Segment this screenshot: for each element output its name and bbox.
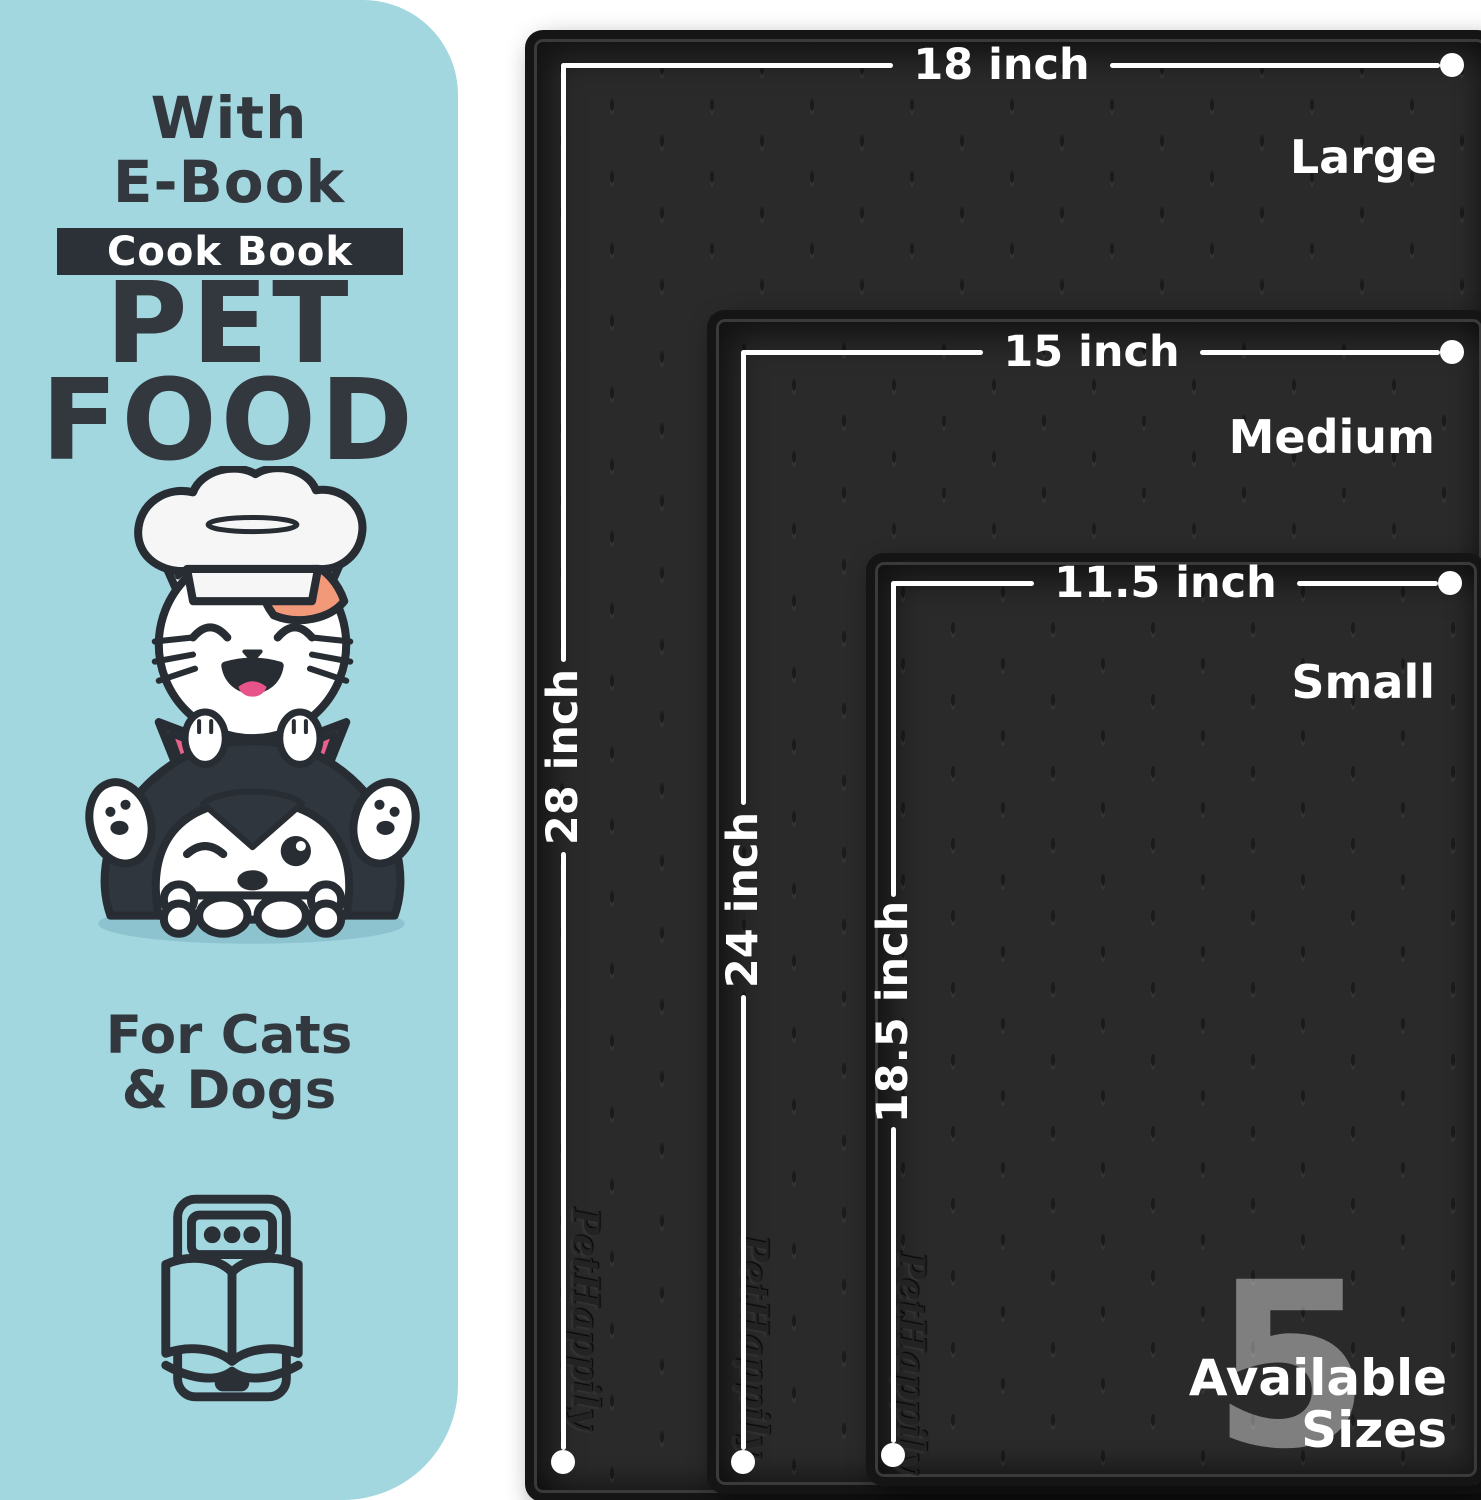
length-label-large: 28 inch — [538, 668, 588, 844]
width-label-small: 11.5 inch — [1034, 558, 1297, 608]
measure-line — [741, 350, 746, 805]
audience-line1: For Cats — [0, 1008, 458, 1063]
size-name-medium: Medium — [1229, 410, 1435, 464]
product-image-canvas: With E-Book Cook Book PET FOOD — [0, 0, 1481, 1500]
length-label-wrap: 24 inch — [719, 805, 767, 995]
info-panel: With E-Book Cook Book PET FOOD — [0, 0, 458, 1500]
measure-endpoint-dot — [731, 1450, 755, 1474]
pet-food-title-line2: FOOD — [0, 373, 458, 470]
width-label-large: 18 inch — [893, 40, 1109, 90]
width-measure-medium: 15 inch — [743, 328, 1464, 376]
width-label-medium: 15 inch — [983, 327, 1199, 377]
length-measure-large: 28 inch — [539, 63, 587, 1474]
audience-text: For Cats & Dogs — [0, 1008, 458, 1118]
available-sizes-line1: Available — [1189, 1352, 1447, 1404]
ebook-heading: With E-Book — [0, 86, 458, 214]
measure-line — [563, 63, 893, 68]
ebook-heading-line1: With — [0, 86, 458, 150]
available-sizes-badge: Available Sizes — [1189, 1352, 1447, 1456]
ebook-icon — [148, 1190, 316, 1410]
measure-endpoint-dot — [1440, 53, 1464, 77]
length-label-wrap: 28 inch — [539, 662, 587, 852]
pet-food-title: PET FOOD — [0, 276, 458, 470]
measure-line — [891, 1127, 896, 1443]
length-measure-small: 18.5 inch — [869, 581, 917, 1467]
measure-line — [561, 852, 566, 1451]
measure-line — [1200, 350, 1440, 355]
measure-line — [743, 350, 983, 355]
width-measure-large: 18 inch — [563, 41, 1464, 89]
size-name-small: Small — [1291, 655, 1435, 709]
ebook-heading-line2: E-Book — [0, 150, 458, 214]
length-label-wrap: 18.5 inch — [869, 897, 917, 1127]
measure-endpoint-dot — [1438, 571, 1462, 595]
cat-dog-chef-illustration — [58, 466, 446, 954]
length-measure-medium: 24 inch — [719, 350, 767, 1474]
length-label-small: 18.5 inch — [868, 901, 918, 1124]
audience-line2: & Dogs — [0, 1063, 458, 1118]
measure-endpoint-dot — [1440, 340, 1464, 364]
available-sizes-line2: Sizes — [1189, 1404, 1447, 1456]
size-name-large: Large — [1290, 130, 1437, 184]
measure-line — [891, 581, 896, 897]
measure-endpoint-dot — [881, 1443, 905, 1467]
measure-line — [1297, 581, 1438, 586]
width-measure-small: 11.5 inch — [893, 559, 1462, 607]
measure-line — [561, 63, 566, 662]
measure-line — [741, 995, 746, 1450]
measure-line — [1110, 63, 1440, 68]
measure-endpoint-dot — [551, 1450, 575, 1474]
length-label-medium: 24 inch — [718, 812, 768, 988]
